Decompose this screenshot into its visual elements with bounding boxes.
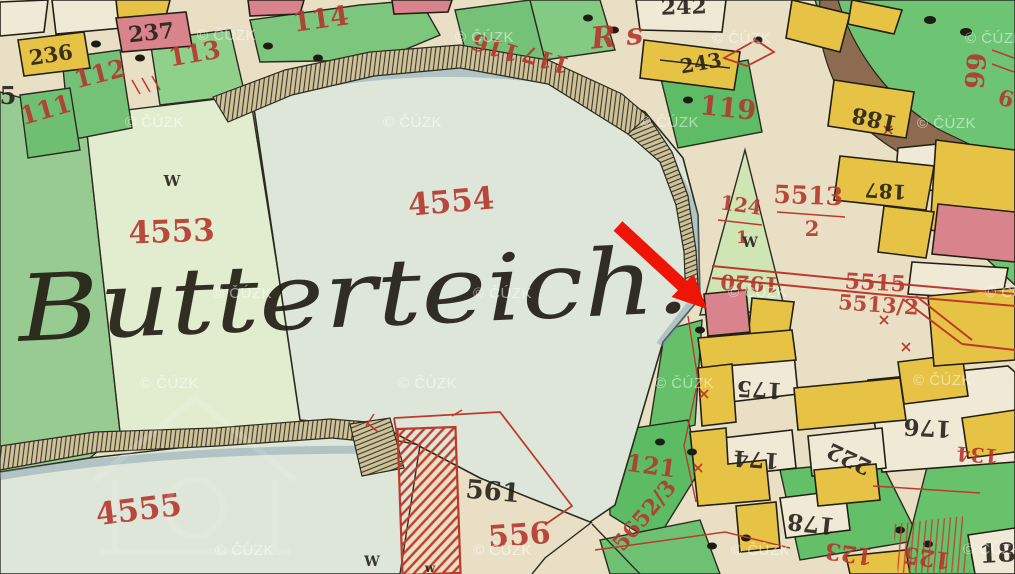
watermark-text: © ČÚZK: [913, 372, 972, 389]
building-222-yellow: [794, 378, 906, 430]
watermark-text: © ČÚZK: [473, 542, 532, 559]
watermark-text: © ČÚZK: [398, 375, 457, 392]
parcel-number-red: 134: [956, 442, 999, 469]
cadastral-map-screenshot: Butterteich. 114113112111116117R s119455…: [0, 0, 1015, 574]
building-number-black: W: [741, 235, 758, 251]
watermark-text: © ČÚZK: [140, 375, 199, 392]
parcel-number-red: R s: [588, 16, 645, 56]
parcel-number-red: 66: [957, 51, 990, 90]
watermark-text: © ČÚZK: [383, 114, 442, 131]
watermark-text: © ČÚZK: [985, 284, 1015, 301]
building-number-black: 175: [736, 375, 783, 403]
watermark-text: © ČÚZK: [728, 284, 787, 301]
watermark-text: © ČÚZK: [965, 30, 1015, 47]
watermark-text: © ČÚZK: [712, 30, 771, 47]
building-number-black: 242: [660, 0, 707, 21]
building-number-black: 174: [733, 444, 781, 473]
building-number-black: W: [163, 172, 182, 190]
parcel-number-red: 2: [805, 216, 820, 241]
parcel-number-red: 5513: [773, 180, 844, 211]
cadastral-map: Butterteich. 114113112111116117R s119455…: [0, 0, 1015, 574]
building-number-black: 237: [127, 18, 175, 49]
building-number-black: 5: [0, 81, 16, 110]
building-number-black: w: [424, 561, 436, 574]
watermark-text: © ČÚZK: [917, 115, 976, 132]
parcel-number-red: 119: [698, 90, 757, 127]
watermark-text: © ČÚZK: [213, 285, 272, 302]
watermark-text: © ČÚZK: [963, 541, 1015, 558]
watermark-text: © ČÚZK: [125, 114, 184, 131]
building-number-black: 561: [464, 475, 521, 510]
red-hatched-building: [397, 427, 460, 574]
parcel-number-red: 4553: [128, 213, 215, 252]
parcel-number-red: 4554: [407, 180, 496, 223]
watermark-text: © ČÚZK: [655, 375, 714, 392]
building-number-black: 178: [786, 508, 837, 540]
watermark-text: © ČÚZK: [731, 542, 790, 559]
watermark-text: © ČÚZK: [640, 114, 699, 131]
watermark-text: © ČÚZK: [455, 29, 514, 46]
watermark-text: © ČÚZK: [473, 285, 532, 302]
building-number-black: 187: [864, 178, 907, 204]
building-number-black: 176: [903, 413, 952, 442]
watermark-text: © ČÚZK: [197, 27, 256, 44]
building-number-black: W: [363, 554, 380, 570]
